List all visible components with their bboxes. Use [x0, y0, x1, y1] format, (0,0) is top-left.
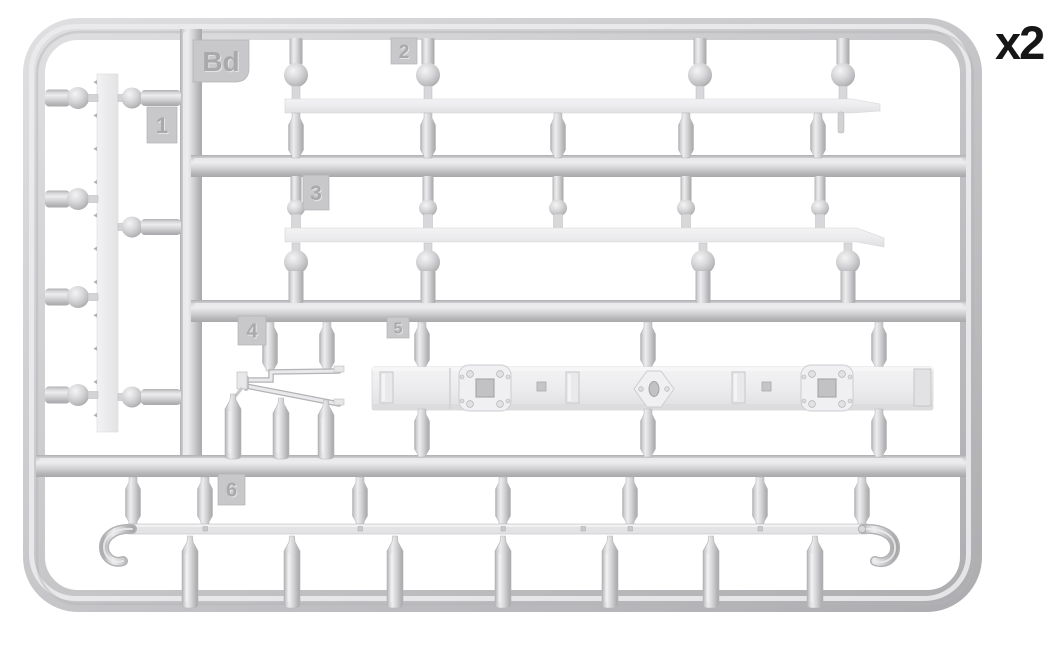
part-6-bolt — [581, 527, 586, 532]
rivet — [802, 375, 806, 379]
cylinder-highlight — [811, 553, 814, 602]
ball-joint — [831, 63, 855, 87]
cylinder-highlight — [322, 417, 325, 453]
part-1-notch — [93, 280, 97, 284]
ball-joint — [122, 387, 143, 408]
sprue-connector — [855, 477, 870, 524]
sprue-code-label: Bd — [202, 46, 239, 77]
part-5-tag-label: 5 — [394, 320, 403, 337]
cylinder-highlight — [277, 415, 280, 453]
rivet — [506, 375, 510, 379]
gate-stub — [424, 214, 433, 229]
gate-pin — [841, 271, 856, 303]
part-4-end-plate — [237, 372, 247, 389]
part-1-notch — [93, 247, 97, 251]
sprue-connector — [415, 409, 430, 457]
gate-pin — [421, 271, 436, 303]
runner-arm — [45, 289, 70, 306]
gate-stub — [292, 86, 300, 100]
cylinder-highlight — [707, 553, 710, 602]
part-5-slot-lug-highlight — [382, 374, 385, 401]
runner-arm — [45, 191, 70, 208]
part-6-cylinder — [387, 536, 403, 608]
ball-joint — [67, 286, 89, 308]
sprue-connector — [679, 113, 694, 158]
rivet — [460, 375, 464, 379]
cylinder-highlight — [186, 553, 189, 602]
sprue-cylinder — [225, 394, 241, 459]
part-1-notch — [93, 413, 97, 417]
runner-arm — [141, 219, 181, 235]
sprue-illustration: BdBd112233445566 x2 — [0, 0, 1060, 646]
rivet — [802, 399, 806, 403]
part-6-cylinder — [284, 536, 300, 608]
cylinder-highlight — [229, 411, 232, 453]
part-6-bolt — [758, 527, 763, 532]
sprue-connector — [415, 322, 430, 368]
part-1-strip — [97, 74, 118, 432]
sprue-connector — [421, 113, 436, 158]
part-5-end-bracket — [914, 369, 931, 406]
ball-joint — [416, 250, 440, 274]
part-6-bolt — [501, 527, 506, 532]
cylinder-highlight — [499, 553, 502, 602]
rivet — [809, 401, 816, 408]
gate-pin — [681, 176, 692, 203]
sprue-connector — [320, 322, 335, 370]
rivet — [497, 371, 504, 378]
runner-arm — [141, 389, 181, 405]
sprue-frame-svg: BdBd112233445566 — [0, 0, 1060, 646]
sprue-connector — [126, 477, 141, 524]
rivet — [467, 371, 474, 378]
sprue-connector — [872, 322, 887, 368]
sprue-connector — [753, 477, 768, 524]
gate-stub — [88, 95, 98, 102]
gate-pin — [694, 38, 707, 65]
part-6-bolt — [358, 527, 363, 532]
part-6-tag-label: 6 — [226, 480, 237, 502]
part-1-notch — [93, 346, 97, 350]
part-1-notch — [93, 147, 97, 151]
part-5-plate-hole — [818, 379, 836, 397]
gate-pin — [553, 176, 564, 203]
sprue-cylinder — [318, 400, 334, 459]
sprue-cylinder — [273, 398, 289, 459]
gate-pin — [290, 38, 303, 65]
gate-pin — [837, 38, 850, 65]
gate-stub — [424, 86, 432, 100]
part-6-cylinder — [182, 536, 198, 608]
rivet — [460, 399, 464, 403]
cylinder-highlight — [606, 553, 609, 602]
part-1-notch — [93, 213, 97, 217]
ball-joint — [284, 250, 308, 274]
rivet — [506, 399, 510, 403]
gate-pin — [291, 176, 302, 203]
rivet — [839, 371, 846, 378]
cylinder-highlight — [288, 553, 291, 602]
quantity-label: x2 — [995, 18, 1055, 67]
horizontal-rail-3-highlight — [39, 458, 963, 463]
horizontal-rail-1-highlight — [194, 158, 963, 163]
gate-stub — [88, 294, 98, 301]
part-4-tag-label: 4 — [246, 321, 258, 343]
rivet — [858, 525, 865, 532]
part-6-bolt — [628, 527, 633, 532]
gate-pin — [423, 176, 434, 203]
part-5-square-hole — [762, 382, 771, 391]
gate-stub — [554, 214, 563, 229]
sprue-connector — [353, 477, 368, 524]
horizontal-rail-2-highlight — [194, 303, 963, 308]
part-5-slot-lug — [732, 372, 745, 403]
ball-joint — [836, 250, 860, 274]
part-1-notch — [93, 380, 97, 384]
part-4-tab — [334, 366, 344, 372]
gate-stub — [696, 86, 704, 100]
part-5-square-hole — [537, 382, 546, 391]
rivet — [809, 371, 816, 378]
part-5-plate-hole — [476, 379, 494, 397]
runner-arm — [45, 90, 70, 107]
part-5-slot-lug — [380, 372, 393, 403]
part-3-tag-label: 3 — [310, 182, 322, 205]
sprue-connector — [198, 477, 213, 524]
gate-pin — [815, 176, 826, 203]
ball-joint — [688, 63, 712, 87]
sprue-connector — [551, 113, 566, 158]
sprue-connector — [641, 322, 656, 368]
part-1-notch — [93, 313, 97, 317]
ball-joint — [67, 188, 89, 210]
part-6-cylinder — [602, 536, 618, 608]
gate-pin — [422, 38, 435, 65]
part-1-notch — [93, 80, 97, 84]
sprue-connector — [872, 409, 887, 457]
sprue-connector — [496, 477, 511, 524]
ball-joint — [691, 250, 715, 274]
ball-joint — [67, 384, 89, 406]
rivet — [665, 387, 670, 392]
part-4-bracket-highlight — [246, 371, 339, 380]
part-6-bar-highlight — [128, 525, 867, 528]
rivet — [639, 387, 644, 392]
part-1-notch — [93, 180, 97, 184]
gate-stub — [839, 86, 847, 100]
ball-joint — [284, 63, 308, 87]
sprue-connector — [641, 409, 656, 457]
runner-arm — [45, 387, 70, 404]
part-3-strip — [285, 228, 884, 247]
gate-stub — [816, 214, 825, 229]
part-4-tab — [334, 399, 344, 405]
gate-stub — [88, 392, 98, 399]
rivet — [848, 399, 852, 403]
cylinder-highlight — [391, 553, 394, 602]
part-1-tag-label: 1 — [156, 113, 168, 138]
part-2-strip — [285, 99, 880, 113]
rivet — [839, 401, 846, 408]
sprue-connector — [289, 113, 304, 158]
runner-arm — [141, 90, 181, 106]
part-2-tag-label: 2 — [399, 42, 410, 63]
part-5-slot-lug — [566, 372, 579, 403]
part-1-notch — [93, 113, 97, 117]
ball-joint — [122, 217, 143, 238]
part-6-cylinder — [807, 536, 823, 608]
rivet — [497, 401, 504, 408]
part-6-cylinder — [703, 536, 719, 608]
gate-pin — [289, 271, 304, 303]
inner-vertical-rail-highlight — [183, 32, 188, 467]
ball-joint — [67, 87, 89, 109]
gate-pin — [696, 271, 711, 303]
part-5-diamond-hole — [649, 382, 659, 397]
ball-joint — [416, 63, 440, 87]
part-5-slot-lug-highlight — [734, 374, 737, 401]
part-6-cylinder — [495, 536, 511, 608]
sprue-connector — [811, 113, 826, 158]
part-5-slot-lug-highlight — [568, 374, 571, 401]
part-2-end-pin — [838, 112, 844, 133]
rivet — [467, 401, 474, 408]
part-6-bolt — [203, 527, 208, 532]
gate-stub — [682, 214, 691, 229]
rivet — [848, 375, 852, 379]
gate-stub — [88, 196, 98, 203]
gate-stub — [292, 214, 301, 229]
ball-joint — [122, 88, 143, 109]
sprue-connector — [623, 477, 638, 524]
